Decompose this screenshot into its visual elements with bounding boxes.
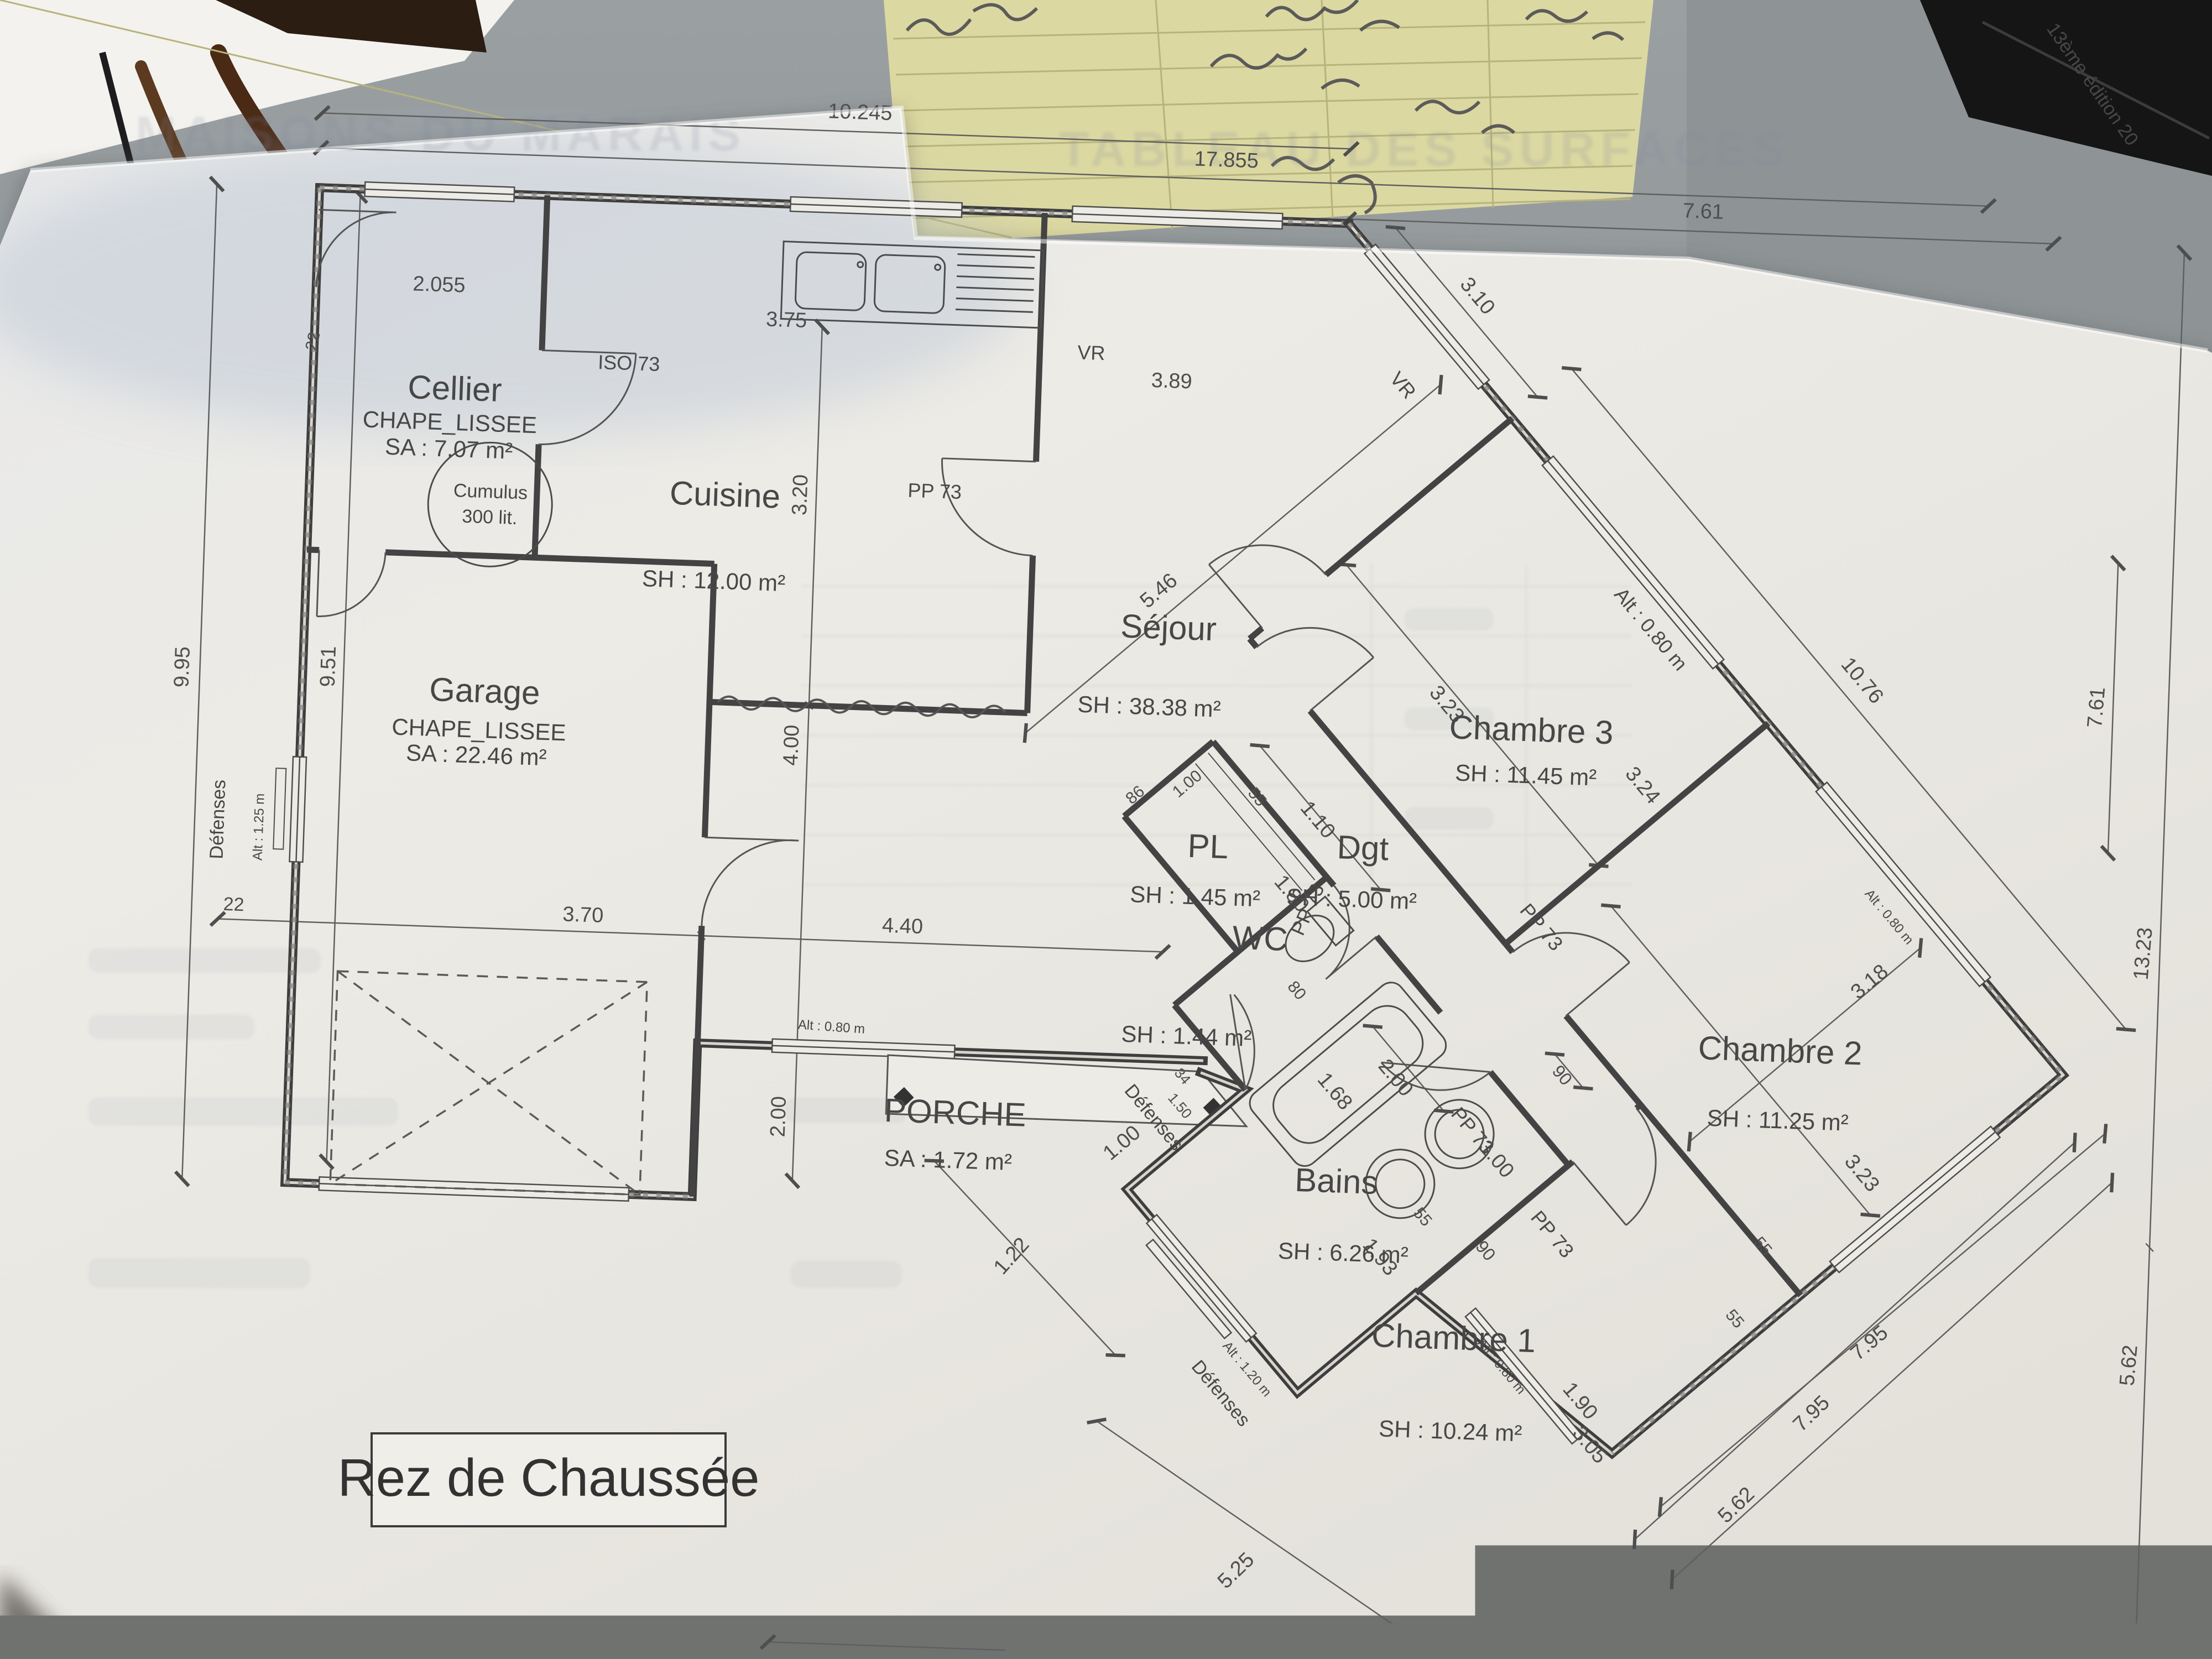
cumulus-line1: Cumulus bbox=[453, 480, 528, 504]
dim-label: 3.74 bbox=[1275, 1636, 1317, 1659]
room-area-porche: SA : 1.72 m² bbox=[884, 1145, 1013, 1175]
room-area-cellier: SA : 7.07 m² bbox=[384, 434, 513, 464]
room-name-chambre3: Chambre 3 bbox=[1449, 708, 1614, 751]
cumulus-line2: 300 lit. bbox=[462, 506, 518, 529]
window-sill-label: Alt : 1.25 m bbox=[250, 793, 267, 860]
room-name-chambre2: Chambre 2 bbox=[1698, 1029, 1863, 1072]
dim-label: 22 bbox=[223, 894, 244, 915]
dim-label: 3.20 bbox=[788, 474, 813, 515]
dim-label: 4.00 bbox=[779, 724, 804, 766]
dim-label: 2.055 bbox=[413, 272, 466, 297]
dim-label: 2.00 bbox=[766, 1096, 791, 1138]
dim-label: 9.95 bbox=[170, 646, 195, 687]
room-area-chambre1: SH : 10.24 m² bbox=[1379, 1415, 1523, 1446]
dim-label: 7.61 bbox=[2083, 686, 2110, 729]
dim-label: 4.40 bbox=[881, 914, 923, 939]
room-area-bains: SH : 6.26 m² bbox=[1277, 1238, 1408, 1268]
dim-label: 22 bbox=[302, 331, 324, 353]
room-name-cellier: Cellier bbox=[407, 368, 502, 409]
dim-label: 3.70 bbox=[562, 902, 604, 927]
dim-label: 5.62 bbox=[2116, 1344, 2142, 1386]
door-label-pp73: PP 73 bbox=[907, 479, 962, 503]
room-name-porche: PORCHE bbox=[884, 1092, 1027, 1134]
plan-title: Rez de Chaussée bbox=[337, 1448, 759, 1507]
window-label-vr: VR bbox=[1077, 341, 1105, 364]
room-name-wc: WC bbox=[1232, 919, 1288, 958]
door-label-iso73: ISO 73 bbox=[598, 351, 660, 375]
scene-canvas: 13ème édition 20 MAISONS DU MARAIS TABLE… bbox=[0, 0, 2212, 1659]
dim-label: 17.855 bbox=[1194, 147, 1259, 173]
defense-label: Défenses bbox=[206, 779, 230, 859]
room-area-cuisine: SH : 12.00 m² bbox=[641, 565, 786, 596]
window-guard bbox=[273, 768, 286, 849]
bleed-title-right: TABLEAU DES SURFACES bbox=[1059, 122, 1791, 176]
room-name-cuisine: Cuisine bbox=[669, 474, 781, 515]
sheet-blue-shadow bbox=[0, 138, 1023, 437]
room-name-dgt: Dgt bbox=[1337, 828, 1390, 867]
title-box: Rez de Chaussée bbox=[337, 1433, 759, 1526]
room-name-garage: Garage bbox=[429, 671, 540, 712]
room-area-garage: SA : 22.46 m² bbox=[405, 739, 547, 770]
room-name-pl: PL bbox=[1187, 827, 1229, 866]
dim-label: 3.75 bbox=[765, 308, 807, 333]
dim-label: 15.5 bbox=[1060, 1623, 1102, 1648]
room-name-sejour: Séjour bbox=[1120, 607, 1217, 648]
photo-of-floor-plan: 13ème édition 20 MAISONS DU MARAIS TABLE… bbox=[0, 0, 2212, 1659]
dim-label: 9.51 bbox=[316, 646, 341, 687]
bleed-title-left: MAISONS DU MARAIS bbox=[135, 106, 746, 161]
dim-label: 13.23 bbox=[2130, 926, 2157, 980]
room-area-pl: SH : 1.45 m² bbox=[1130, 881, 1261, 911]
room-area-sejour: SH : 38.38 m² bbox=[1077, 691, 1222, 722]
room-name-chambre1: Chambre 1 bbox=[1371, 1317, 1536, 1359]
dim-label: 3.89 bbox=[1151, 369, 1192, 394]
dim-label: 5.62 bbox=[1748, 1647, 1790, 1659]
room-area-chambre3: SH : 11.45 m² bbox=[1455, 760, 1597, 791]
dim-label: 7.61 bbox=[1682, 199, 1724, 224]
room-area-wc: SH : 1.44 m² bbox=[1121, 1021, 1252, 1051]
room-area-chambre2: SH : 11.25 m² bbox=[1707, 1105, 1849, 1136]
room-name-bains: Bains bbox=[1294, 1161, 1378, 1201]
